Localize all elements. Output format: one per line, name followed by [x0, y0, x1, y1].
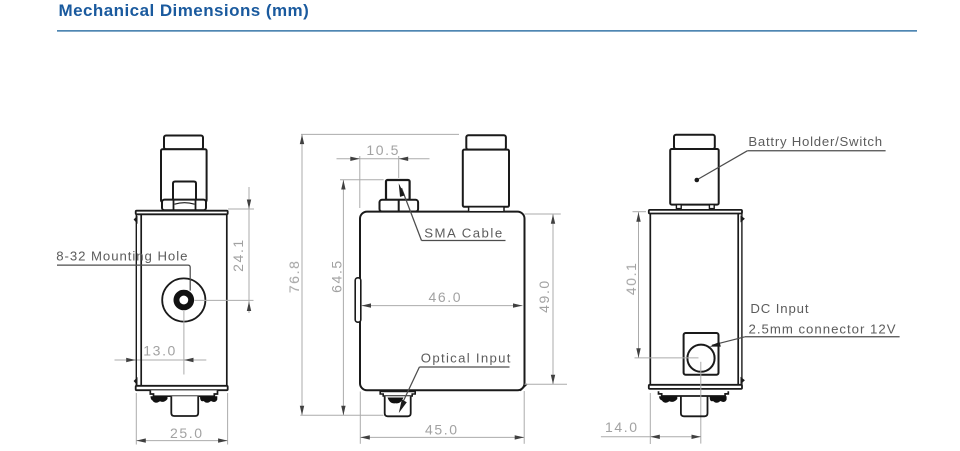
- svg-text:DC Input: DC Input: [750, 301, 809, 316]
- svg-text:64.5: 64.5: [329, 259, 345, 293]
- svg-text:49.0: 49.0: [536, 279, 552, 313]
- svg-text:25.0: 25.0: [170, 425, 204, 441]
- svg-text:2.5mm connector 12V: 2.5mm connector 12V: [749, 322, 897, 337]
- svg-text:13.0: 13.0: [143, 343, 177, 359]
- svg-text:14.0: 14.0: [605, 419, 639, 435]
- svg-text:8-32 Mounting Hole: 8-32 Mounting Hole: [56, 249, 188, 264]
- svg-text:45.0: 45.0: [425, 421, 459, 437]
- svg-text:SMA Cable: SMA Cable: [424, 225, 503, 240]
- svg-text:40.1: 40.1: [623, 261, 639, 295]
- svg-text:46.0: 46.0: [429, 289, 463, 305]
- svg-text:Battry Holder/Switch: Battry Holder/Switch: [748, 134, 882, 149]
- svg-text:24.1: 24.1: [230, 238, 246, 272]
- svg-text:10.5: 10.5: [366, 142, 400, 158]
- svg-text:76.8: 76.8: [286, 259, 302, 293]
- svg-text:Mechanical Dimensions (mm): Mechanical Dimensions (mm): [59, 1, 310, 20]
- svg-text:Optical Input: Optical Input: [421, 351, 512, 366]
